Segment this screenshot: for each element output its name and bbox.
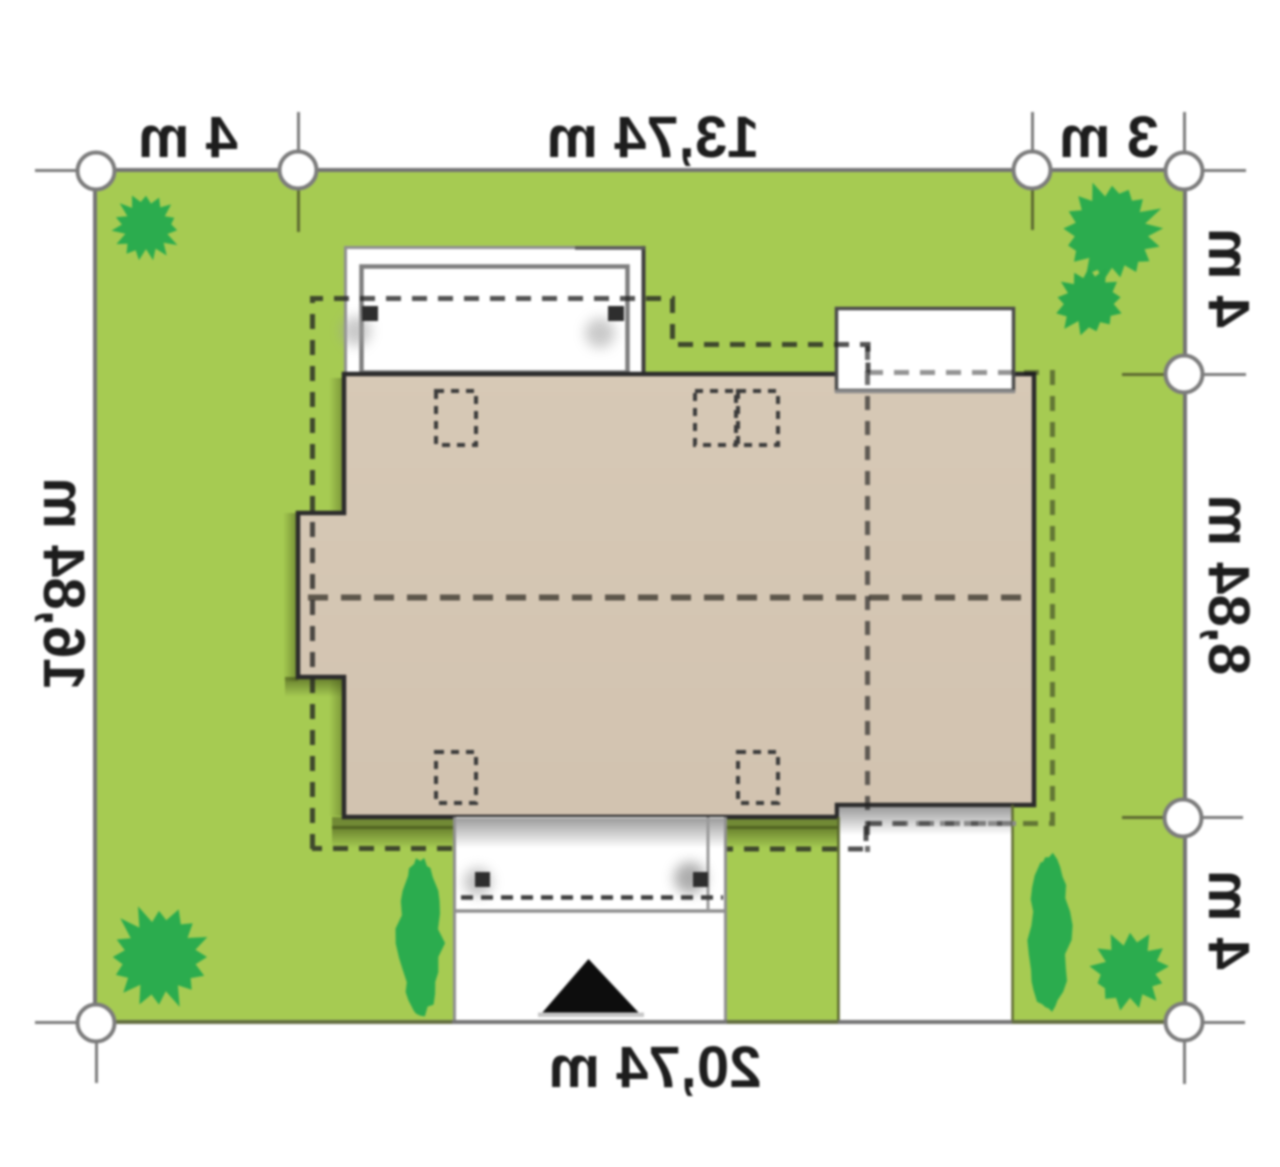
svg-text:4 m: 4 m [138, 105, 238, 170]
svg-text:4 m: 4 m [1196, 870, 1261, 970]
svg-text:20,74 m: 20,74 m [549, 1035, 762, 1100]
svg-text:16,84 m: 16,84 m [31, 478, 96, 691]
svg-text:8,84 m: 8,84 m [1196, 495, 1261, 676]
svg-text:4 m: 4 m [1196, 228, 1261, 328]
svg-text:13,74 m: 13,74 m [547, 105, 760, 170]
svg-text:3 m: 3 m [1059, 105, 1159, 170]
